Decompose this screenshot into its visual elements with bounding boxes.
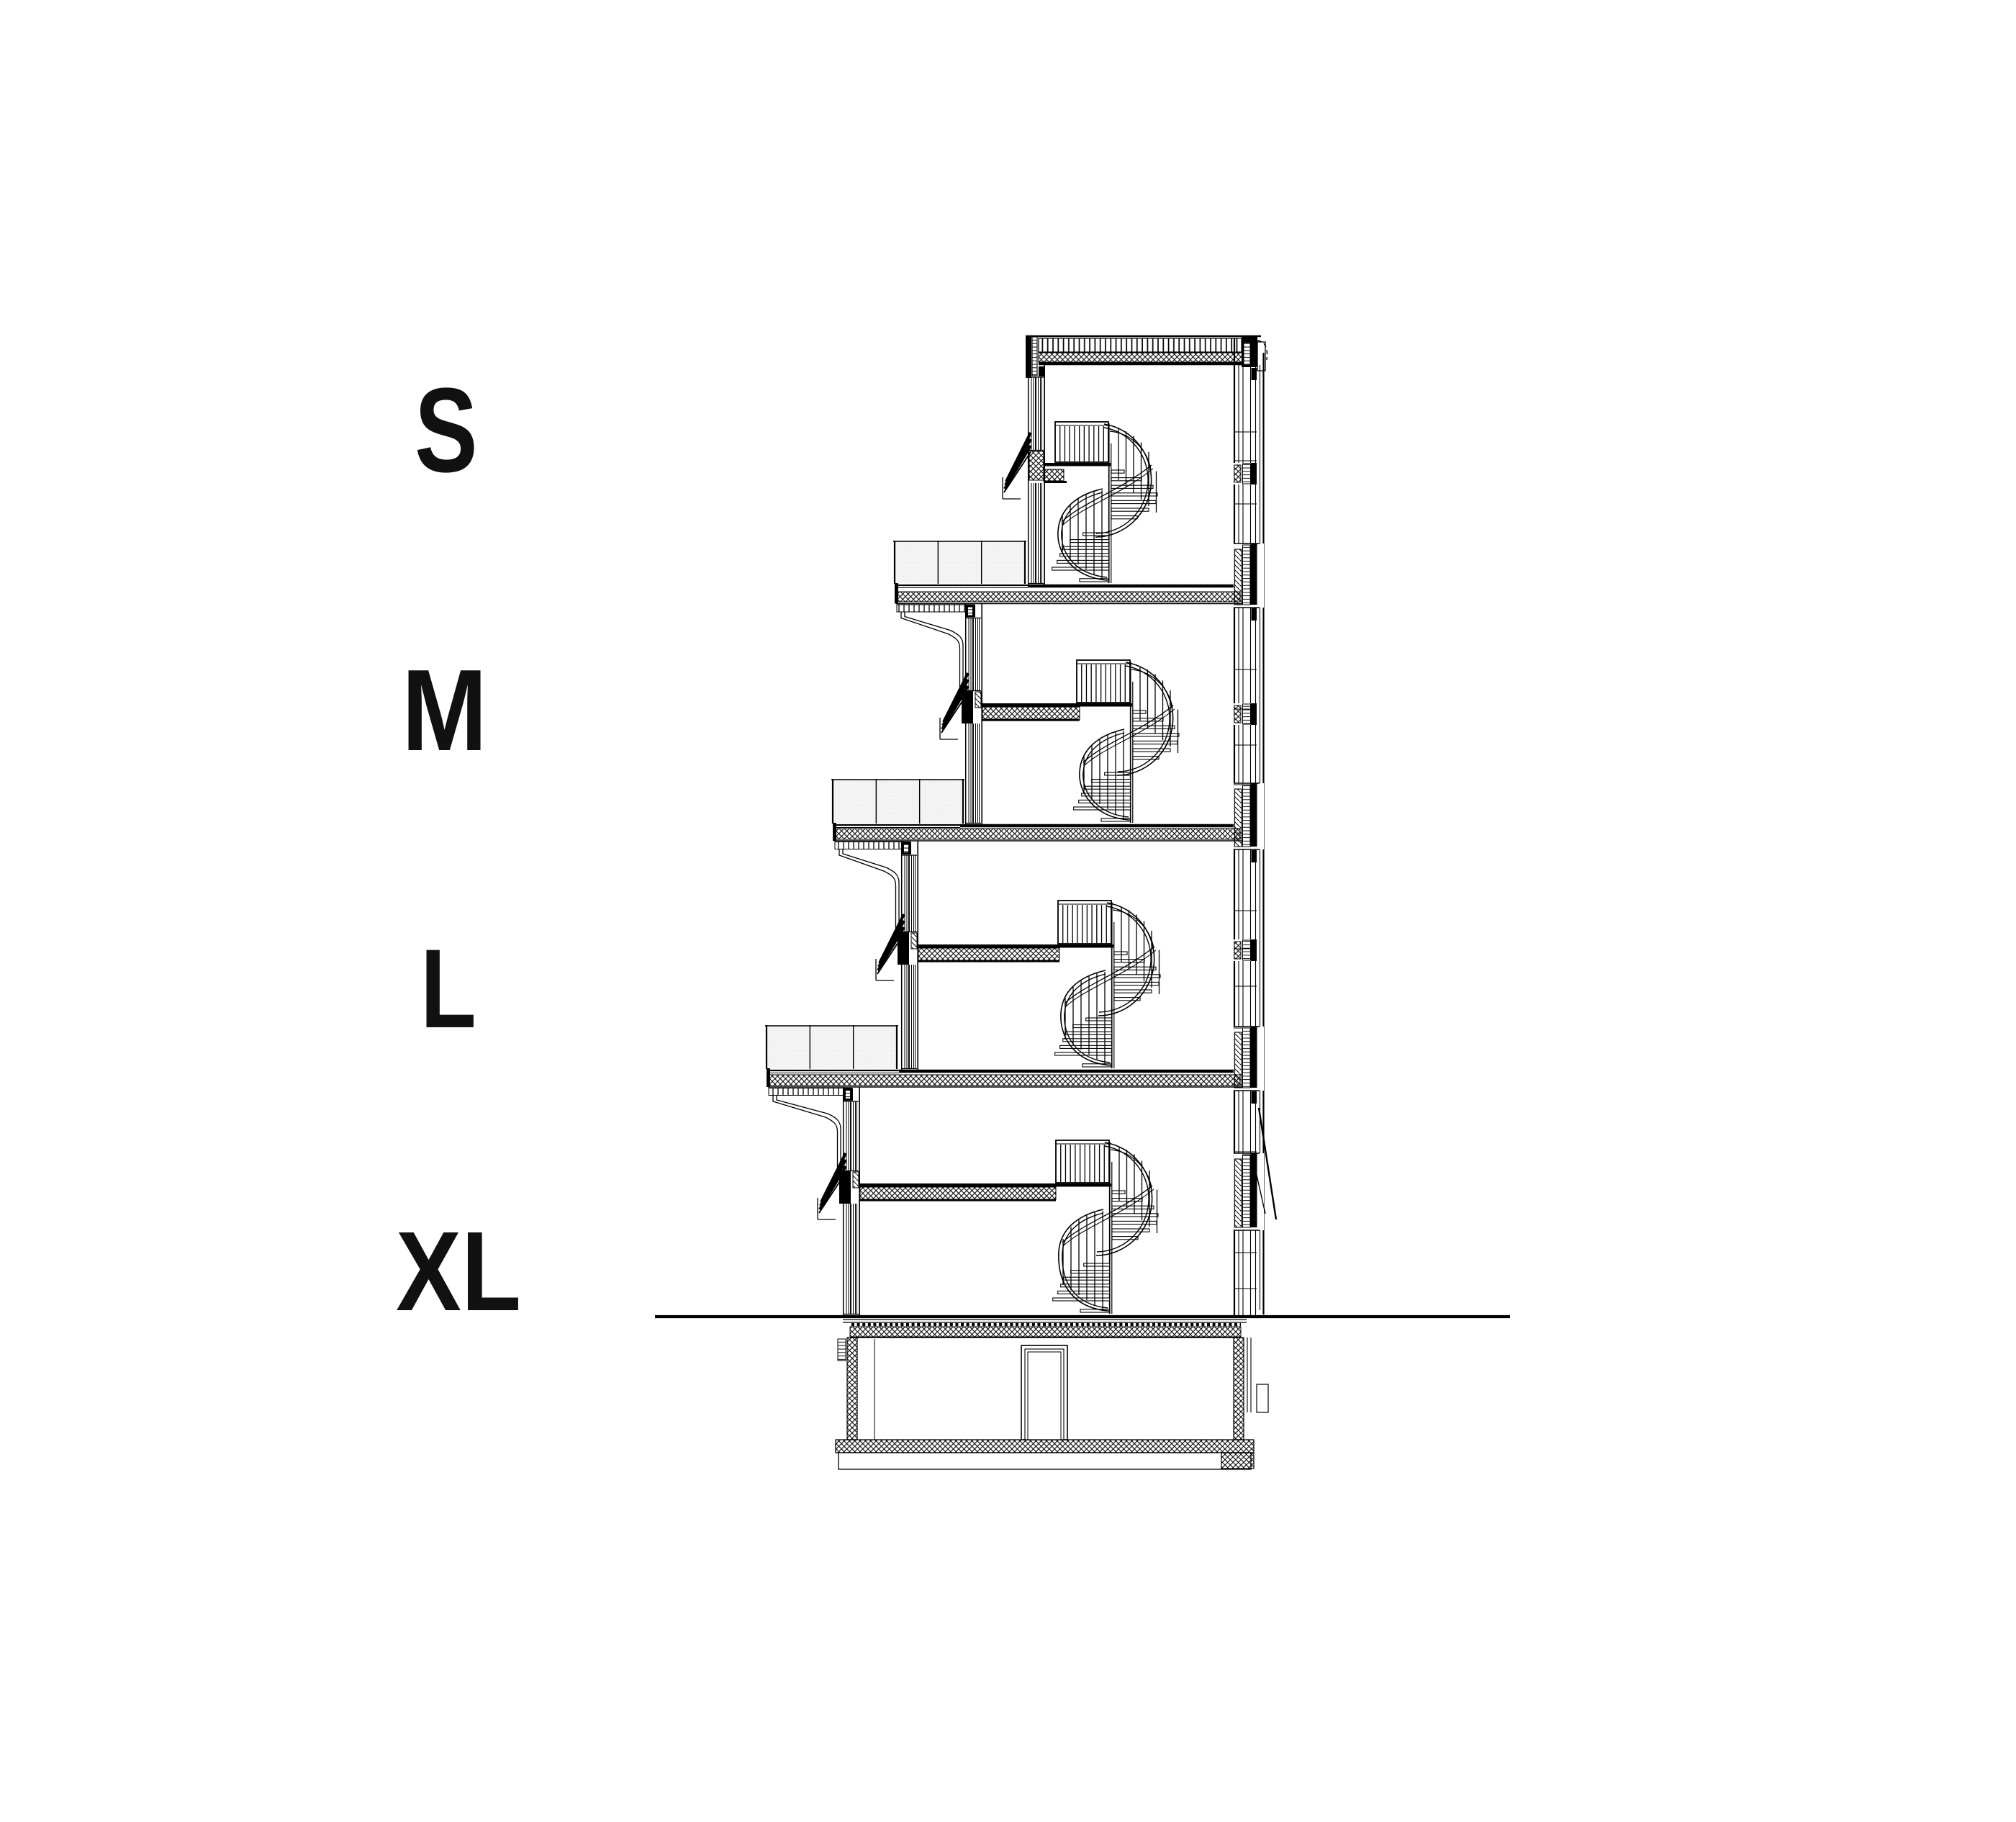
svg-text:S: S <box>415 363 478 497</box>
svg-text:L: L <box>420 926 476 1052</box>
svg-text:M: M <box>402 646 487 775</box>
svg-text:XL: XL <box>396 1209 521 1335</box>
